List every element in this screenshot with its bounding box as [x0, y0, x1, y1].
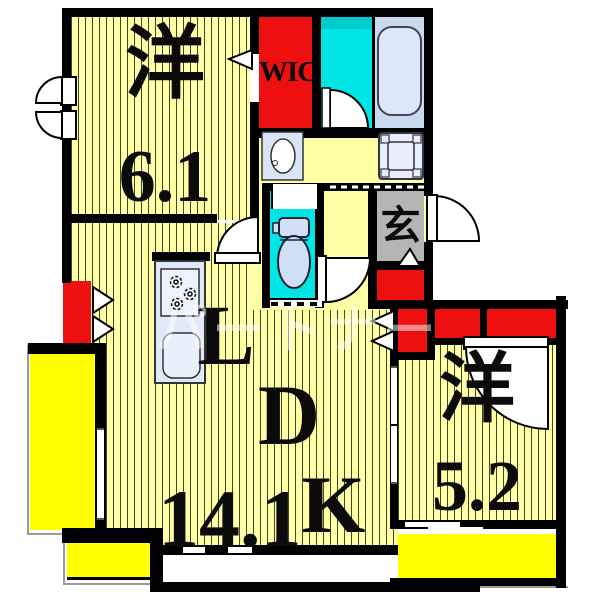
wic-arrow-icon — [229, 50, 252, 69]
living-label-d: D — [252, 372, 326, 458]
door-arc-washroom — [330, 90, 368, 128]
ldk-size: 14.1K — [158, 478, 365, 560]
bedroom-main-name: 洋 — [110, 25, 220, 105]
ldk-size-number: 14.1 — [158, 473, 302, 564]
wic-label: WIC — [259, 58, 312, 87]
door-leaf — [215, 253, 260, 263]
bathtub-icon — [378, 27, 421, 115]
entrance-step-icon — [398, 249, 420, 266]
casement-window-icon — [36, 77, 62, 103]
bedroom-second-name: 洋 — [422, 352, 532, 428]
folding-door-icon — [93, 316, 113, 342]
floorplan-canvas: 洋 6.1 WIC 玄 L D 14.1K 洋 5.2 パートナー — [0, 0, 600, 600]
bedroom-second-size: 5.2 — [417, 450, 537, 522]
washbasin-bowl-icon — [271, 139, 295, 173]
door-leaf — [427, 195, 437, 241]
washbasin-faucet-icon — [273, 161, 278, 166]
washing-machine-pan-icon — [379, 133, 423, 179]
door-arc-entrance — [434, 196, 479, 241]
toilet-icon — [273, 218, 310, 288]
door-leaf — [322, 88, 330, 128]
bedroom-main-size: 6.1 — [105, 140, 225, 214]
watermark-text: パートナー — [118, 288, 478, 363]
door-arc-bedroom1 — [217, 217, 258, 258]
entrance-label: 玄 — [378, 206, 423, 246]
casement-window-icon — [36, 112, 62, 138]
ldk-kitchen-letter: K — [302, 464, 366, 546]
folding-door-icon — [93, 287, 113, 313]
